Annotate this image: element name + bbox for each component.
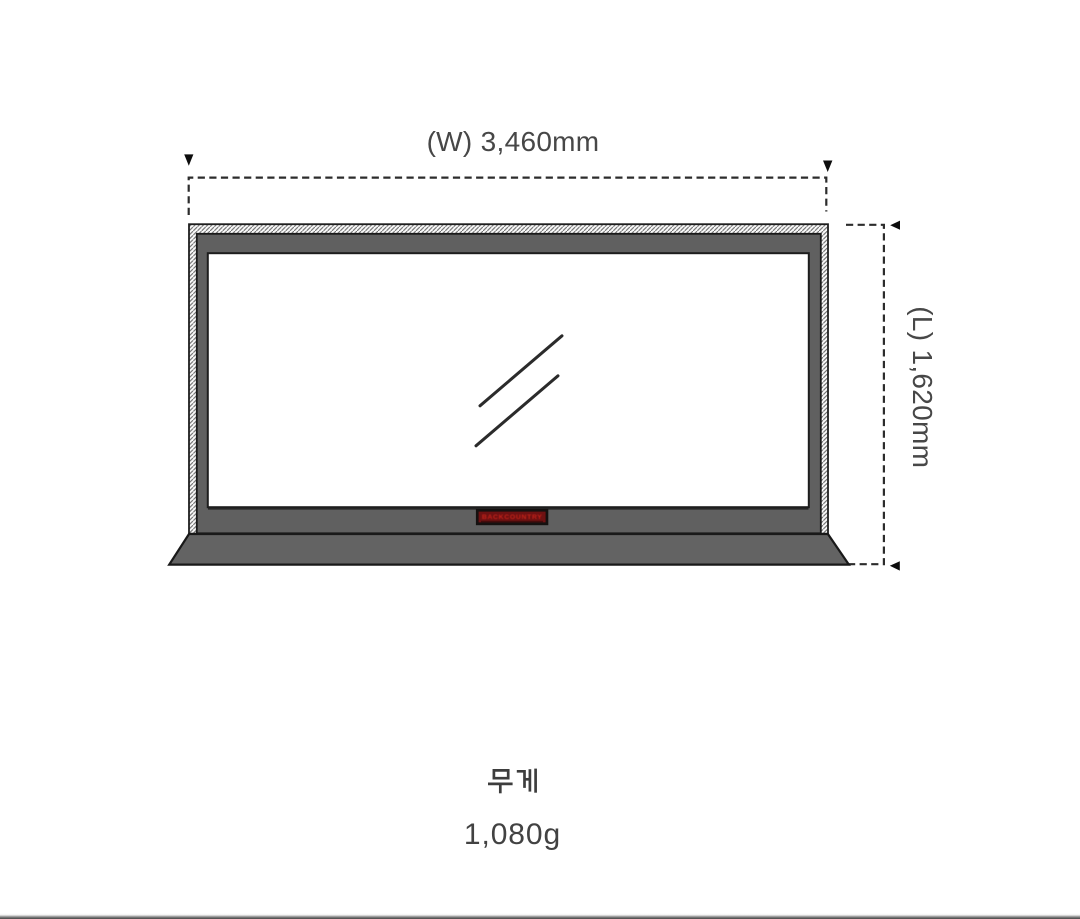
svg-text:(L) 1,620mm: (L) 1,620mm xyxy=(907,306,938,468)
svg-text:BACKCOUNTRY: BACKCOUNTRY xyxy=(482,514,543,521)
svg-text:1,080g: 1,080g xyxy=(464,818,561,851)
svg-text:(W) 3,460mm: (W) 3,460mm xyxy=(427,126,600,157)
